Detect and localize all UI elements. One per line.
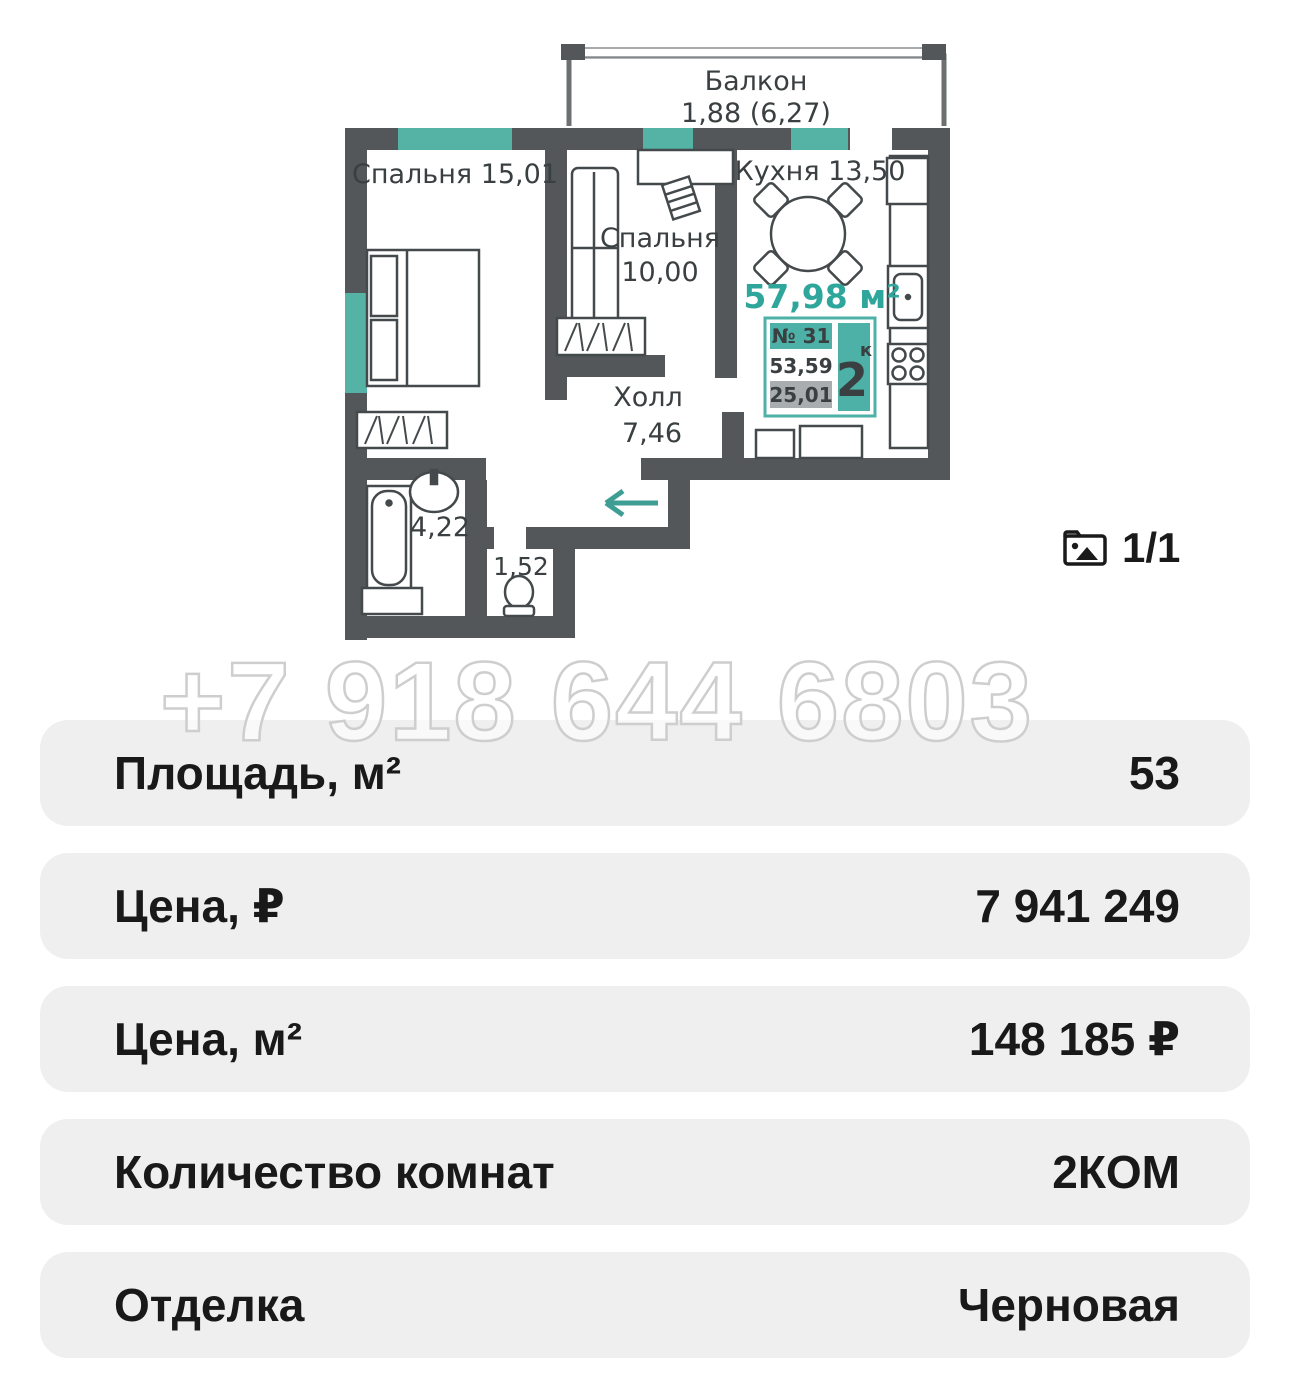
property-table: Площадь, м² 53 Цена, ₽ 7 941 249 Цена, м… [40, 720, 1250, 1385]
table-row-finishing: Отделка Черновая [40, 1252, 1250, 1358]
bed [367, 250, 479, 386]
bathroom-cabinet [362, 588, 422, 614]
row-value: 148 185 ₽ [969, 1012, 1180, 1066]
bathroom-sink [410, 470, 458, 512]
row-value: 53 [1129, 746, 1180, 800]
wardrobe-bedroom1 [357, 412, 447, 448]
wc-area: 1,52 [493, 552, 549, 581]
bedroom2-area: 10,00 [621, 257, 698, 288]
total-area: 57,98 м² [743, 277, 900, 316]
hall-area: 7,46 [622, 418, 682, 449]
balcony-label: Балкон [705, 66, 808, 97]
hall-label: Холл [613, 382, 683, 413]
bathtub [367, 486, 411, 590]
wardrobe-bedroom2 [557, 318, 645, 355]
table-row-price-per-m2: Цена, м² 148 185 ₽ [40, 986, 1250, 1092]
balcony-area: 1,88 (6,27) [681, 98, 831, 129]
gallery-icon [1062, 529, 1108, 567]
row-value: 2КОМ [1052, 1145, 1180, 1199]
row-label: Цена, ₽ [114, 879, 285, 933]
rooms-count-badge: 2 [836, 353, 868, 407]
row-value: 7 941 249 [975, 879, 1180, 933]
rooms-count-sup: к [860, 340, 872, 361]
bedroom2-label: Спальня [600, 223, 720, 254]
entry-closets [756, 426, 862, 458]
dining-table [753, 182, 864, 287]
floorplan-image[interactable]: Балкон 1,88 (6,27) Спальня 15,01 Спальня… [0, 0, 1290, 690]
bathroom-area: 4,22 [410, 512, 470, 543]
row-label: Площадь, м² [114, 746, 401, 800]
bedroom1-label: Спальня 15,01 [352, 159, 558, 190]
row-value: Черновая [958, 1278, 1180, 1332]
table-row-price: Цена, ₽ 7 941 249 [40, 853, 1250, 959]
kitchen-label: Кухня 13,50 [735, 156, 906, 187]
row-label: Цена, м² [114, 1012, 302, 1066]
table-row-rooms: Количество комнат 2КОМ [40, 1119, 1250, 1225]
photo-counter[interactable]: 1/1 [1062, 524, 1180, 572]
balcony-door-opening [850, 128, 892, 150]
unit-badge: № 31 53,59 25,01 2 к [765, 318, 875, 416]
area-other: 25,01 [769, 383, 832, 407]
table-row-area: Площадь, м² 53 [40, 720, 1250, 826]
floorplan-svg: Балкон 1,88 (6,27) Спальня 15,01 Спальня… [0, 0, 1290, 690]
row-label: Количество комнат [114, 1145, 555, 1199]
photo-counter-label: 1/1 [1122, 524, 1180, 572]
area-living: 53,59 [769, 354, 832, 378]
toilet [504, 576, 534, 616]
entrance-arrow-icon [606, 491, 658, 515]
unit-number: № 31 [772, 324, 831, 348]
row-label: Отделка [114, 1278, 304, 1332]
